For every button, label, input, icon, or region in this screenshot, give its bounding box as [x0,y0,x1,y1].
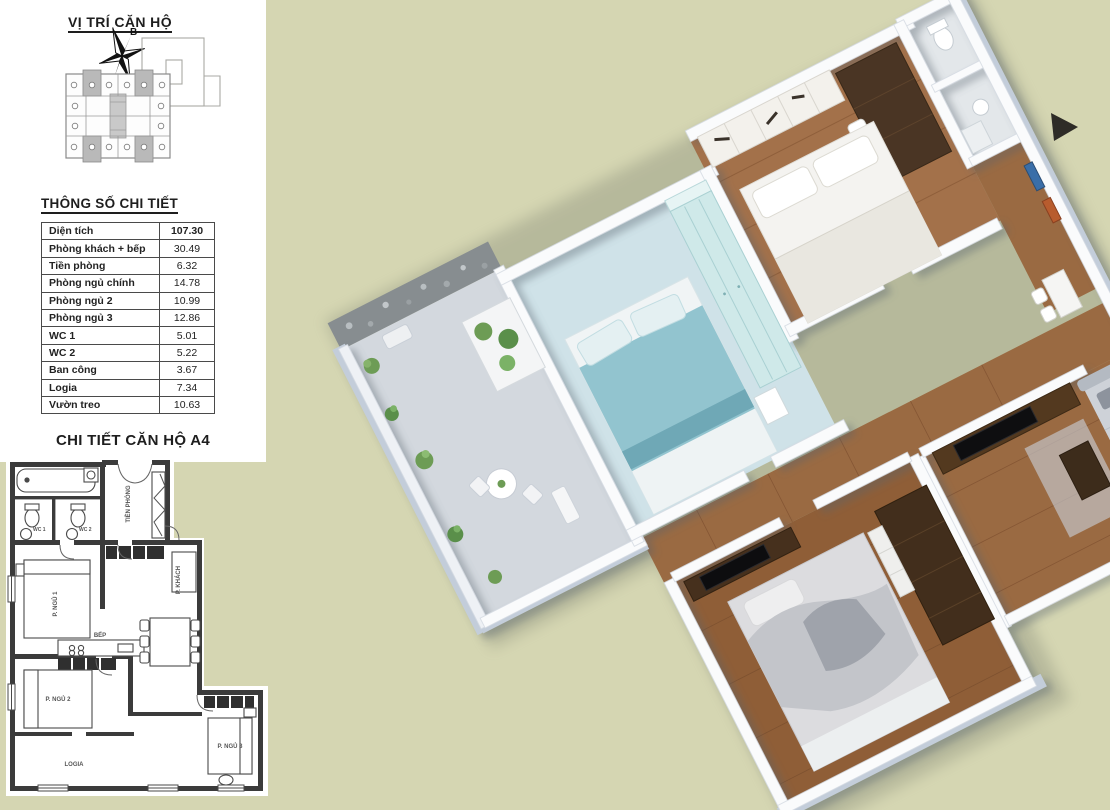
room-label: TIỀN PHÒNG [124,485,132,523]
table-row: Phòng ngủ 312.86 [42,309,215,326]
render-3d-apartment [278,0,1110,810]
table-row: Phòng ngủ 210.99 [42,292,215,309]
table-row: WC 15.01 [42,327,215,344]
floor-plan-2d: TIỀN PHÒNG WC 1 WC 2 P. NGỦ 1 P. NGỦ 2 P… [2,456,272,810]
stool [219,775,233,785]
room-label: P. NGỦ 2 [46,696,72,703]
room-label: LOGIA [65,762,85,768]
specs-title: THÔNG SỐ CHI TIẾT [41,196,178,214]
tower-footprint [66,70,170,162]
direction-arrow-icon [1051,113,1078,141]
page: VỊ TRÍ CĂN HỘ B [0,0,1110,810]
table-row: WC 25.22 [42,344,215,361]
table-row: Logia7.34 [42,379,215,396]
table-row: Ban công3.67 [42,362,215,379]
table-row: Phòng khách + bếp30.49 [42,240,215,257]
nightstand [244,708,256,717]
washing-machine [84,468,98,482]
room-label: P. KHÁCH [175,566,182,594]
room-label: BẾP [94,632,106,639]
toilet [71,509,85,527]
room-label: P. NGỦ 3 [218,743,244,750]
room-label: WC 1 [33,527,46,533]
table-row: Diện tích107.30 [42,223,215,240]
table-row: Vườn treo10.63 [42,396,215,413]
sink [21,529,32,540]
building-minimap [52,36,257,178]
toilet [25,509,39,527]
table-row: Phòng ngủ chính14.78 [42,275,215,292]
room-label: WC 2 [79,527,92,533]
table-row: Tiền phòng6.32 [42,257,215,274]
sink [67,529,78,540]
dining-table [150,618,190,666]
specs-table: Diện tích107.30 Phòng khách + bếp30.49 T… [41,222,215,414]
room-label: P. NGỦ 1 [52,591,59,617]
detail-title: CHI TIẾT CĂN HỘ A4 [0,432,266,449]
